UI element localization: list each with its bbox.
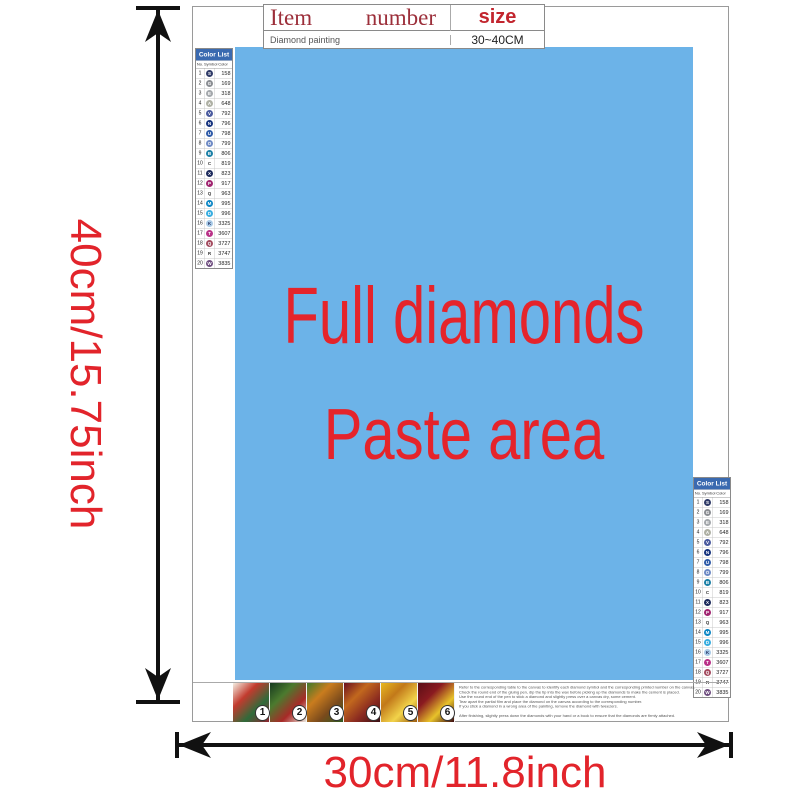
color-number-cell: 16 bbox=[694, 648, 703, 658]
color-list-title: Color List bbox=[196, 49, 232, 61]
col-color: Color bbox=[214, 62, 232, 67]
color-list-column-headers: No. Symbol Color bbox=[196, 61, 232, 69]
color-list-row: 9 B 806 bbox=[694, 578, 730, 588]
color-list-row: 12 P 917 bbox=[694, 608, 730, 618]
color-number-cell: 18 bbox=[694, 668, 703, 678]
color-symbol-icon: Q bbox=[206, 190, 213, 197]
color-code-cell: 917 bbox=[713, 609, 730, 615]
color-number-cell: 10 bbox=[196, 159, 205, 169]
color-list-row: 10 C 819 bbox=[196, 159, 232, 169]
color-number-cell: 11 bbox=[694, 598, 703, 608]
color-number-cell: 2 bbox=[196, 79, 205, 89]
color-symbol-icon: W bbox=[704, 689, 711, 696]
color-code-cell: 963 bbox=[713, 619, 730, 625]
product-infographic: 40cm/15.75inch Item number size Diamond … bbox=[0, 0, 800, 800]
thumbnail-number-badge: 2 bbox=[292, 705, 307, 721]
col-symbol: Symbol bbox=[702, 491, 712, 496]
color-list-row: 1 S 158 bbox=[694, 498, 730, 508]
color-list-row: 7 U 798 bbox=[694, 558, 730, 568]
color-code-cell: 796 bbox=[713, 549, 730, 555]
color-code-cell: 823 bbox=[215, 170, 232, 176]
color-number-cell: 17 bbox=[196, 229, 205, 239]
color-list-row: 15 D 996 bbox=[694, 638, 730, 648]
color-code-cell: 3747 bbox=[215, 250, 232, 256]
color-symbol-icon: S bbox=[704, 499, 711, 506]
color-list-row: 4 A 648 bbox=[196, 99, 232, 109]
color-list-row: 7 U 798 bbox=[196, 129, 232, 139]
color-symbol-icon: T bbox=[206, 230, 213, 237]
color-number-cell: 9 bbox=[196, 149, 205, 159]
col-symbol: Symbol bbox=[204, 62, 214, 67]
height-dimension-label: 40cm/15.75inch bbox=[64, 204, 110, 544]
color-symbol-icon: V bbox=[206, 110, 213, 117]
color-list-row: 11 X 823 bbox=[196, 169, 232, 179]
color-code-cell: 963 bbox=[215, 190, 232, 196]
color-list-row: 8 O 799 bbox=[196, 139, 232, 149]
color-code-cell: 798 bbox=[215, 130, 232, 136]
color-number-cell: 4 bbox=[694, 528, 703, 538]
color-list-column-headers: No. Symbol Color bbox=[694, 490, 730, 498]
color-number-cell: 15 bbox=[694, 638, 703, 648]
color-code-cell: 3325 bbox=[215, 220, 232, 226]
preview-thumbnail: 2 bbox=[270, 683, 307, 722]
color-list-row: 17 T 3607 bbox=[196, 229, 232, 239]
color-symbol-icon: G bbox=[704, 509, 711, 516]
color-symbol-icon: Q bbox=[206, 240, 213, 247]
preview-thumbnail: 1 bbox=[233, 683, 270, 722]
preview-thumbnail: 4 bbox=[344, 683, 381, 722]
color-number-cell: 4 bbox=[196, 99, 205, 109]
color-list-row: 12 P 917 bbox=[196, 179, 232, 189]
color-list-row: 4 A 648 bbox=[694, 528, 730, 538]
color-code-cell: 819 bbox=[713, 589, 730, 595]
color-list-row: 18 Q 3727 bbox=[196, 239, 232, 249]
color-code-cell: 3727 bbox=[713, 669, 730, 675]
color-list-row: 8 O 799 bbox=[694, 568, 730, 578]
color-list-row: 14 M 995 bbox=[694, 628, 730, 638]
color-symbol-icon: A bbox=[206, 100, 213, 107]
color-symbol-icon: P bbox=[704, 609, 711, 616]
color-list-row: 16 K 3325 bbox=[694, 648, 730, 658]
thumbnail-number-badge: 1 bbox=[255, 705, 270, 721]
color-symbol-icon: O bbox=[206, 140, 213, 147]
color-code-cell: 158 bbox=[215, 70, 232, 76]
color-code-cell: 3835 bbox=[713, 689, 730, 695]
color-list-row: 5 V 792 bbox=[196, 109, 232, 119]
thumbnail-number-badge: 4 bbox=[366, 705, 381, 721]
color-symbol-icon: P bbox=[206, 180, 213, 187]
color-symbol-icon: B bbox=[704, 579, 711, 586]
color-symbol-icon: Q bbox=[704, 619, 711, 626]
paste-area: Full diamonds Paste area bbox=[235, 47, 693, 680]
color-list-row: 2 G 169 bbox=[196, 79, 232, 89]
item-table-header: Item number size bbox=[264, 5, 544, 31]
color-number-cell: 8 bbox=[694, 568, 703, 578]
color-symbol-icon: X bbox=[206, 170, 213, 177]
color-symbol-icon: C bbox=[704, 589, 711, 596]
preview-thumbnail: 6 bbox=[418, 683, 455, 722]
color-symbol-icon: V bbox=[704, 539, 711, 546]
number-header-label: number bbox=[366, 5, 436, 31]
width-dimension-label: 30cm/11.8inch bbox=[235, 748, 695, 798]
color-symbol-icon: E bbox=[704, 519, 711, 526]
color-number-cell: 12 bbox=[694, 608, 703, 618]
col-color: Color bbox=[712, 491, 730, 496]
color-symbol-icon: D bbox=[206, 210, 213, 217]
color-symbol-icon: A bbox=[704, 529, 711, 536]
color-list-row: 5 V 792 bbox=[694, 538, 730, 548]
color-symbol-icon: G bbox=[206, 80, 213, 87]
color-symbol-icon: R bbox=[206, 250, 213, 257]
color-code-cell: 169 bbox=[713, 509, 730, 515]
color-list-row: 13 Q 963 bbox=[694, 618, 730, 628]
color-symbol-icon: M bbox=[704, 629, 711, 636]
item-header-label: Item bbox=[270, 5, 312, 31]
color-number-cell: 17 bbox=[694, 658, 703, 668]
size-value: 30~40CM bbox=[451, 33, 544, 47]
color-code-cell: 995 bbox=[215, 200, 232, 206]
color-number-cell: 6 bbox=[196, 119, 205, 129]
color-list-row: 13 Q 963 bbox=[196, 189, 232, 199]
color-number-cell: 9 bbox=[694, 578, 703, 588]
color-code-cell: 917 bbox=[215, 180, 232, 186]
color-symbol-icon: Q bbox=[704, 669, 711, 676]
color-list-row: 3 E 318 bbox=[694, 518, 730, 528]
height-dimension-arrow bbox=[134, 0, 182, 712]
color-symbol-icon: U bbox=[704, 559, 711, 566]
color-code-cell: 995 bbox=[713, 629, 730, 635]
color-list-row: 19 R 3747 bbox=[196, 249, 232, 259]
color-symbol-icon: E bbox=[206, 90, 213, 97]
color-code-cell: 996 bbox=[215, 210, 232, 216]
color-number-cell: 18 bbox=[196, 239, 205, 249]
color-code-cell: 158 bbox=[713, 499, 730, 505]
color-code-cell: 799 bbox=[215, 140, 232, 146]
color-list-row: 10 C 819 bbox=[694, 588, 730, 598]
paste-area-title-line1: Full diamonds bbox=[235, 273, 693, 361]
color-symbol-icon: M bbox=[206, 200, 213, 207]
color-list-row: 6 N 796 bbox=[694, 548, 730, 558]
color-list-row: 17 T 3607 bbox=[694, 658, 730, 668]
color-symbol-icon: O bbox=[704, 569, 711, 576]
color-number-cell: 3 bbox=[196, 89, 205, 99]
color-code-cell: 819 bbox=[215, 160, 232, 166]
color-list-row: 3 E 318 bbox=[196, 89, 232, 99]
color-list-row: 14 M 995 bbox=[196, 199, 232, 209]
item-info-table: Item number size Diamond painting 30~40C… bbox=[263, 4, 545, 49]
color-symbol-icon: C bbox=[206, 160, 213, 167]
color-code-cell: 792 bbox=[713, 539, 730, 545]
color-list-row: 2 G 169 bbox=[694, 508, 730, 518]
color-code-cell: 169 bbox=[215, 80, 232, 86]
color-list-right: Color List No. Symbol Color 1 S 158 2 G … bbox=[693, 477, 731, 698]
color-number-cell: 6 bbox=[694, 548, 703, 558]
preview-thumbnail: 3 bbox=[307, 683, 344, 722]
color-code-cell: 806 bbox=[713, 579, 730, 585]
size-header-label: size bbox=[451, 6, 544, 29]
color-list-row: 20 W 3835 bbox=[196, 259, 232, 269]
color-number-cell: 2 bbox=[694, 508, 703, 518]
color-number-cell: 5 bbox=[694, 538, 703, 548]
color-symbol-icon: K bbox=[704, 649, 711, 656]
color-list-row: 1 S 158 bbox=[196, 69, 232, 79]
color-number-cell: 14 bbox=[694, 628, 703, 638]
preview-thumbnail: 5 bbox=[381, 683, 418, 722]
color-symbol-icon: W bbox=[206, 260, 213, 267]
color-symbol-icon: K bbox=[206, 220, 213, 227]
color-number-cell: 15 bbox=[196, 209, 205, 219]
color-symbol-icon: T bbox=[704, 659, 711, 666]
thumbnail-number-badge: 6 bbox=[440, 705, 455, 721]
color-symbol-icon: N bbox=[206, 120, 213, 127]
color-number-cell: 5 bbox=[196, 109, 205, 119]
color-code-cell: 318 bbox=[215, 90, 232, 96]
paste-area-title-line2: Paste area bbox=[235, 395, 693, 475]
color-list-left: Color List No. Symbol Color 1 S 158 2 G … bbox=[195, 48, 233, 269]
color-code-cell: 792 bbox=[215, 110, 232, 116]
color-list-row: 15 D 996 bbox=[196, 209, 232, 219]
color-code-cell: 823 bbox=[713, 599, 730, 605]
color-list-row: 18 Q 3727 bbox=[694, 668, 730, 678]
color-symbol-icon: B bbox=[206, 150, 213, 157]
color-code-cell: 799 bbox=[713, 569, 730, 575]
color-number-cell: 1 bbox=[196, 69, 205, 79]
color-code-cell: 3607 bbox=[713, 659, 730, 665]
thumbnail-number-badge: 3 bbox=[329, 705, 344, 721]
color-number-cell: 16 bbox=[196, 219, 205, 229]
color-list-row: 11 X 823 bbox=[694, 598, 730, 608]
col-no: No. bbox=[694, 491, 702, 496]
instruction-line: After finishing, slightly press down the… bbox=[459, 713, 699, 718]
color-number-cell: 7 bbox=[196, 129, 205, 139]
color-number-cell: 19 bbox=[196, 249, 205, 259]
color-code-cell: 318 bbox=[713, 519, 730, 525]
color-number-cell: 13 bbox=[694, 618, 703, 628]
color-number-cell: 13 bbox=[196, 189, 205, 199]
color-code-cell: 798 bbox=[713, 559, 730, 565]
instruction-line: If you stick a diamond in a wrong area o… bbox=[459, 704, 699, 709]
color-symbol-icon: D bbox=[704, 639, 711, 646]
preview-thumbnails: 1 2 3 4 5 6 bbox=[233, 683, 455, 722]
color-code-cell: 3835 bbox=[215, 260, 232, 266]
color-number-cell: 20 bbox=[196, 259, 205, 269]
color-code-cell: 996 bbox=[713, 639, 730, 645]
color-code-cell: 3607 bbox=[215, 230, 232, 236]
color-symbol-icon: S bbox=[206, 70, 213, 77]
instructions-text: Refer to the corresponding table to the … bbox=[459, 685, 699, 718]
color-code-cell: 796 bbox=[215, 120, 232, 126]
color-code-cell: 806 bbox=[215, 150, 232, 156]
col-no: No. bbox=[196, 62, 204, 67]
color-list-row: 9 B 806 bbox=[196, 149, 232, 159]
color-number-cell: 14 bbox=[196, 199, 205, 209]
item-table-row: Diamond painting 30~40CM bbox=[264, 31, 544, 48]
color-list-row: 6 N 796 bbox=[196, 119, 232, 129]
color-number-cell: 1 bbox=[694, 498, 703, 508]
color-number-cell: 10 bbox=[694, 588, 703, 598]
color-number-cell: 12 bbox=[196, 179, 205, 189]
color-number-cell: 8 bbox=[196, 139, 205, 149]
color-symbol-icon: X bbox=[704, 599, 711, 606]
color-symbol-icon: N bbox=[704, 549, 711, 556]
color-symbol-icon: U bbox=[206, 130, 213, 137]
color-list-row: 20 W 3835 bbox=[694, 688, 730, 698]
color-list-title: Color List bbox=[694, 478, 730, 490]
color-number-cell: 7 bbox=[694, 558, 703, 568]
thumbnail-number-badge: 5 bbox=[403, 705, 418, 721]
color-code-cell: 3727 bbox=[215, 240, 232, 246]
color-code-cell: 648 bbox=[215, 100, 232, 106]
color-number-cell: 3 bbox=[694, 518, 703, 528]
color-code-cell: 648 bbox=[713, 529, 730, 535]
color-list-row: 16 K 3325 bbox=[196, 219, 232, 229]
color-code-cell: 3325 bbox=[713, 649, 730, 655]
color-number-cell: 11 bbox=[196, 169, 205, 179]
item-value: Diamond painting bbox=[264, 35, 451, 45]
